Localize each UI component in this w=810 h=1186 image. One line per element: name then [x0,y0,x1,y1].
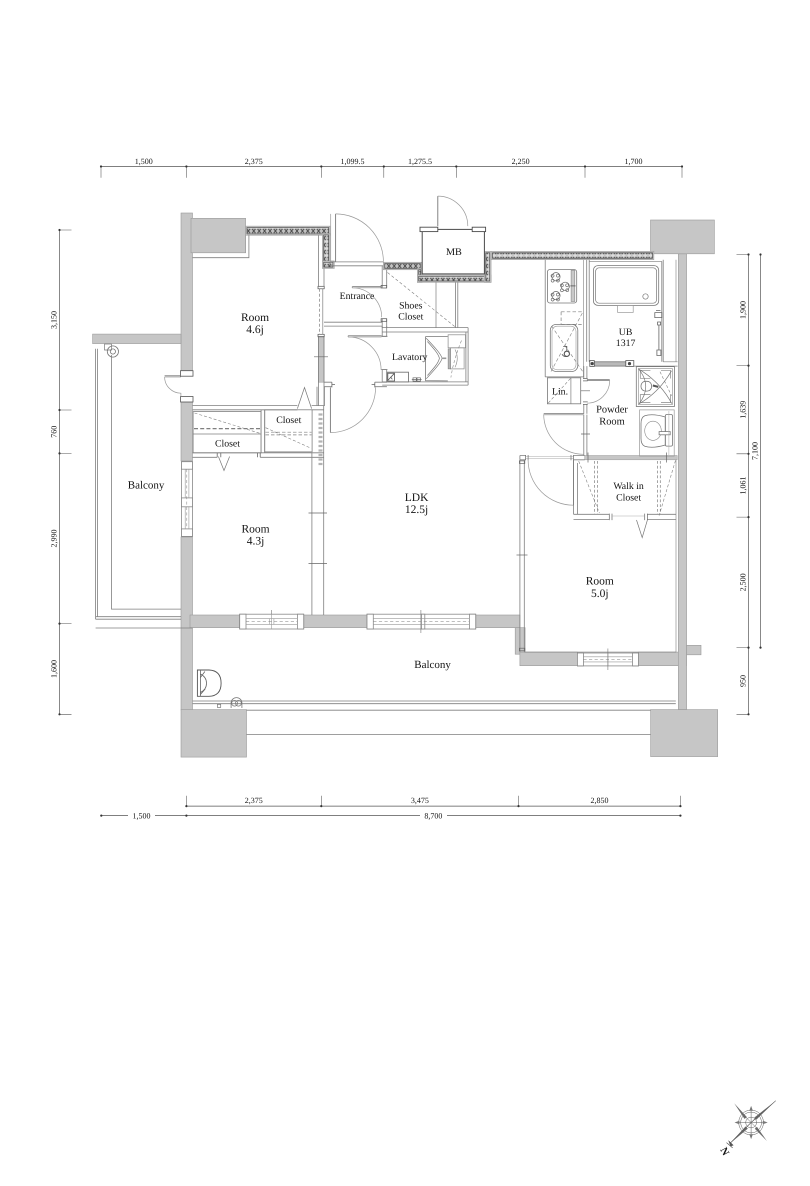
svg-text:4.3j: 4.3j [247,536,265,548]
svg-text:Lavatory: Lavatory [392,352,427,363]
svg-text:2,375: 2,375 [245,157,263,166]
svg-text:2,250: 2,250 [512,157,530,166]
svg-text:Closet: Closet [398,312,423,323]
svg-text:UB: UB [619,327,633,338]
svg-text:2,500: 2,500 [739,573,748,591]
svg-text:1,061: 1,061 [739,477,748,495]
svg-text:1,500: 1,500 [135,157,153,166]
svg-text:Shoes: Shoes [399,301,423,312]
svg-text:LDK: LDK [405,492,429,504]
svg-text:1,600: 1,600 [50,660,59,678]
svg-text:1,500: 1,500 [133,811,151,820]
svg-text:950: 950 [739,675,748,687]
svg-text:760: 760 [50,426,59,438]
svg-text:MB: MB [446,247,462,258]
svg-text:Entrance: Entrance [340,291,375,302]
svg-text:Powder: Powder [596,404,628,415]
svg-text:Balcony: Balcony [414,659,451,671]
svg-text:Closet: Closet [616,493,641,504]
svg-text:5.0j: 5.0j [591,588,609,600]
svg-text:3,475: 3,475 [411,796,429,805]
svg-text:1,099.5: 1,099.5 [341,157,365,166]
svg-text:4.6j: 4.6j [246,324,264,336]
svg-text:Walk in: Walk in [613,481,644,492]
svg-text:Room: Room [586,576,614,588]
svg-text:Room: Room [241,524,269,536]
svg-text:1,275.5: 1,275.5 [408,157,432,166]
svg-text:1,700: 1,700 [625,157,643,166]
svg-text:12.5j: 12.5j [405,504,428,516]
svg-text:Room: Room [599,417,624,428]
svg-text:3,150: 3,150 [50,311,59,329]
svg-text:1,900: 1,900 [739,301,748,319]
svg-text:2,850: 2,850 [591,796,609,805]
svg-text:Room: Room [241,312,269,324]
svg-text:2,990: 2,990 [50,530,59,548]
svg-text:Closet: Closet [276,415,301,426]
svg-text:8,700: 8,700 [424,811,442,820]
svg-text:Balcony: Balcony [128,479,165,491]
svg-text:Lin.: Lin. [552,387,568,398]
svg-text:Closet: Closet [215,438,240,449]
svg-text:1317: 1317 [616,338,636,349]
svg-text:2,375: 2,375 [245,796,263,805]
svg-text:7,100: 7,100 [751,442,760,460]
svg-text:1,639: 1,639 [739,401,748,419]
